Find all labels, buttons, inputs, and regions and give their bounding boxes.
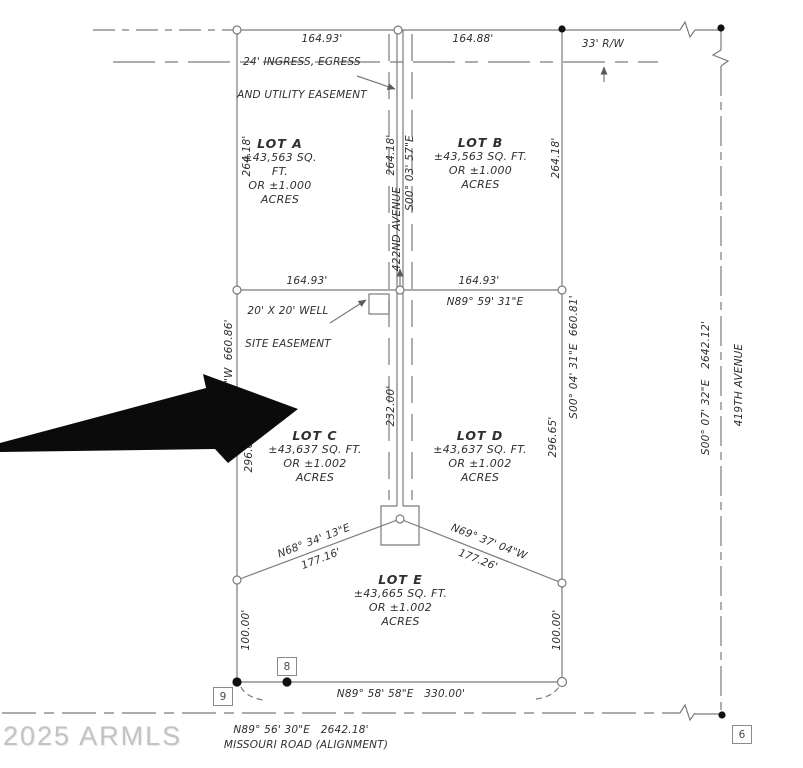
plat-survey-drawing: 164.93' 164.88' 33' R/W 24' INGRESS, EGR…	[0, 0, 803, 768]
armls-watermark: 2025 ARMLS	[3, 721, 182, 752]
highlight-arrow-shape	[0, 374, 298, 463]
highlight-arrow-icon	[0, 0, 803, 768]
